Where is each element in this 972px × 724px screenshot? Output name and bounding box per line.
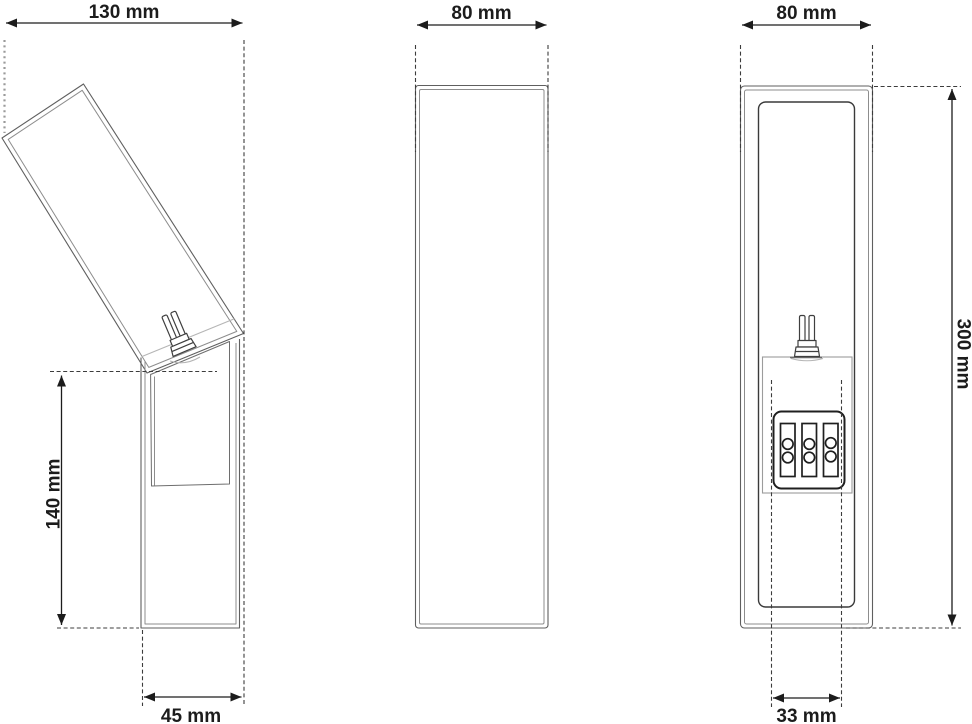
dimension-label-head-width: 130 mm (89, 2, 160, 23)
front-view (416, 86, 549, 629)
lamp-socket-2pin-icon (157, 309, 196, 357)
dimension-label-rear-width: 80 mm (776, 3, 836, 24)
dimension-label-lower-body-height: 140 mm (44, 459, 65, 530)
terminal-slot (824, 424, 839, 477)
lamp-head-inner-wall (8, 90, 237, 367)
side-view (2, 84, 244, 628)
dimension-base-depth: 45 mm (143, 630, 242, 724)
dimension-label-front-width: 80 mm (451, 3, 511, 24)
dimension-overall-height: 300 mm (846, 87, 972, 629)
technical-drawing-page: 130 mm 80 mm 80 mm 140 mm 300 mm 45 mm (0, 0, 972, 724)
dimension-label-base-depth: 45 mm (161, 706, 221, 724)
terminal-block (774, 412, 845, 489)
lamp-socket-2pin-icon (795, 316, 820, 357)
front-body-outline (416, 86, 549, 629)
technical-drawing-canvas: 130 mm 80 mm 80 mm 140 mm 300 mm 45 mm (0, 0, 972, 724)
front-body-inner-wall (420, 90, 545, 625)
dimension-label-overall-height: 300 mm (953, 319, 972, 390)
dimension-front-width: 80 mm (416, 3, 549, 152)
dimension-rear-width: 80 mm (741, 3, 873, 152)
opening-panel (151, 342, 230, 487)
dimension-label-mount-slot-width: 33 mm (776, 706, 836, 724)
rear-view (741, 86, 873, 628)
socket-shadow (791, 359, 823, 361)
